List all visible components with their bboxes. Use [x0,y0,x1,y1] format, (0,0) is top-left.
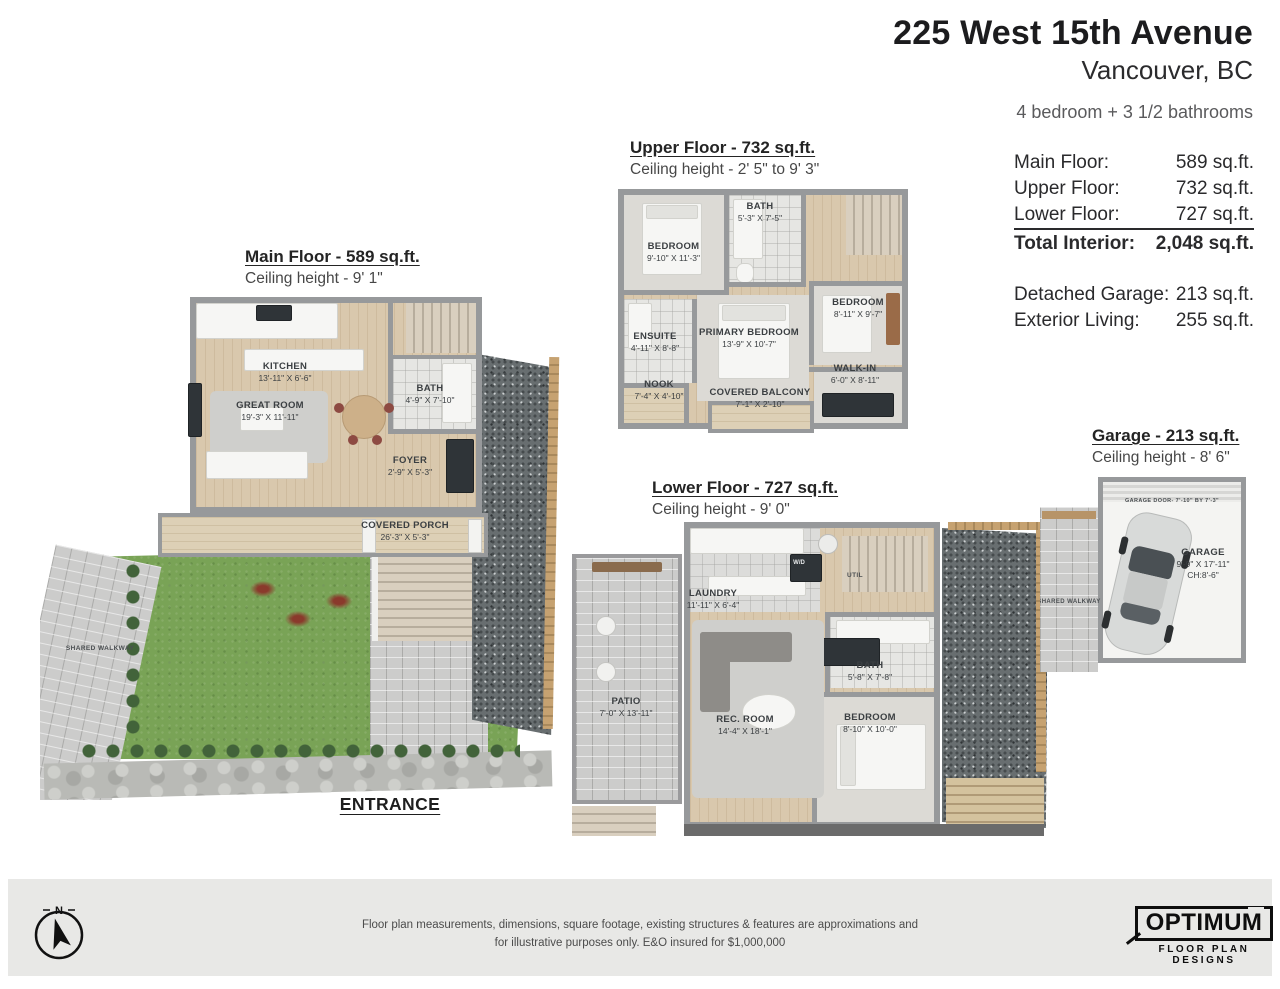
room-label-covered-porch: COVERED PORCH 26'-3" X 5'-3" [330,520,480,543]
table-row-total: Total Interior: 2,048 sq.ft. [1014,230,1254,258]
optimum-logo: OPTIMUM FLOOR PLAN DESIGNS [1128,906,1280,966]
interior-wall [812,692,934,697]
room-label-bath: BATH 5'-8" X 7'-8" [825,660,915,683]
garage-plan: GARAGE DOOR- 7'-10" BY 7'-3" GARAGE 9'-9… [1040,465,1252,680]
stairs [406,303,476,353]
patio-chair [596,662,616,682]
room-label-util: UTIL [825,572,885,580]
stairs [842,536,928,592]
bed-pillows [722,305,786,321]
table-row: Main Floor: 589 sq.ft. [1014,150,1254,176]
floor-plan-sheet: 225 West 15th Avenue Vancouver, BC 4 bed… [0,0,1280,989]
header: 225 West 15th Avenue Vancouver, BC 4 bed… [893,14,1253,123]
area-summary-table: Main Floor: 589 sq.ft. Upper Floor: 732 … [1014,150,1254,334]
garage-title: Garage - 213 sq.ft. Ceiling height - 8' … [1092,425,1239,468]
bed-pillows [646,205,698,219]
main-floor-plan: KITCHEN 13'-11" X 6'-6" GREAT ROOM 19'-3… [40,295,560,800]
dining-chair [372,435,382,445]
water-heater [818,534,838,554]
wood-fence [948,522,1040,530]
room-label-covered-balcony: COVERED BALCONY 7'-1" X 2'-10" [700,387,820,410]
interior-wall [729,282,806,287]
room-label-bedroom: BEDROOM 8'-10" X 10'-0" [818,712,922,735]
patio-chair [596,616,616,636]
garage-door-label: GARAGE DOOR- 7'-10" BY 7'-3" [1102,498,1242,505]
wardrobe [822,393,894,417]
room-label-primary-bedroom: PRIMARY BEDROOM 13'-9" X 10'-7" [693,327,805,350]
table-row: Exterior Living: 255 sq.ft. [1014,308,1254,334]
foundation-edge [684,824,1044,836]
upper-floor-plan: BEDROOM 9'-10" X 11'-3" BATH 5'-3" X 7'-… [618,185,914,439]
room-label-garage: GARAGE 9'-9" X 17'-11" CH:8'-6" [1158,547,1248,581]
shared-walkway-pavers [1040,507,1098,672]
red-plant [326,593,352,609]
car-wheel [1101,610,1112,629]
exterior-stairs [946,778,1044,824]
svg-text:N: N [55,905,63,917]
room-label-laundry: LAUNDRY 11'-11" X 6'-4" [653,588,773,611]
room-label-bath: BATH 5'-3" X 7'-5" [724,201,796,224]
upper-floor-title: Upper Floor - 732 sq.ft. Ceiling height … [630,137,819,180]
car-wheel [1163,624,1174,643]
sofa [700,632,730,712]
room-label-nook: NOOK 7'-4" X 4'-10" [626,379,692,402]
patio-steps [572,806,656,836]
room-label-rec-room: REC. ROOM 14'-4" X 18'-1" [685,714,805,737]
hedge-row [80,743,520,759]
tape-measure-hook-icon [1125,932,1140,945]
table-row: Detached Garage: 213 sq.ft. [1014,282,1254,308]
room-label-bedroom: BEDROOM 8'-11" X 9'-7" [814,297,902,320]
bed-bath-summary: 4 bedroom + 3 1/2 bathrooms [893,102,1253,123]
interior-wall [801,195,806,285]
sofa [206,451,308,479]
tape-measure-frame-icon: OPTIMUM [1135,906,1274,941]
disclaimer-text: Floor plan measurements, dimensions, squ… [0,917,1280,953]
washer-dryer-label: W/D [784,560,814,566]
room-label-great-room: GREAT ROOM 19'-3" X 11'-11" [190,400,350,423]
page-title: 225 West 15th Avenue [893,14,1253,53]
shared-walkway-label: SHARED WALKWAY [50,645,150,653]
room-label-ensuite: ENSUITE 4'-11" X 8'-8" [620,331,690,354]
entrance-label: ENTRANCE [318,794,462,815]
room-label-kitchen: KITCHEN 13'-11" X 6'-6" [225,361,345,384]
car-wheel [1118,536,1129,555]
entry-stairs [372,547,486,641]
interior-wall [393,429,476,434]
lower-floor-title: Lower Floor - 727 sq.ft. Ceiling height … [652,477,838,520]
patio-bench [592,562,662,572]
stairs [846,195,902,255]
main-floor-title: Main Floor - 589 sq.ft. Ceiling height -… [245,246,420,289]
range-stove [256,305,292,321]
car [1100,508,1196,659]
interior-wall [825,612,934,617]
room-label-bath: BATH 4'-9" X 7'-10" [385,383,475,406]
red-plant [250,581,276,597]
dining-chair [348,435,358,445]
room-label-foyer: FOYER 2'-9" X 5'-3" [360,455,460,478]
washer-dryer [790,554,822,582]
shared-walkway-label: SHARED WALKWAY [1040,599,1104,607]
city-subtitle: Vancouver, BC [893,55,1253,86]
laundry-cabinets [690,528,804,554]
red-plant [285,611,311,627]
room-label-patio: PATIO 7'-0" X 13'-11" [572,696,680,719]
table-row: Lower Floor: 727 sq.ft. [1014,202,1254,230]
room-label-bedroom: BEDROOM 9'-10" X 11'-3" [626,241,721,264]
interior-wall [809,281,902,286]
wood-edge [1042,511,1096,519]
lower-floor-plan: LAUNDRY 11'-11" X 6'-4" UTIL W/D BATH 5'… [570,520,1052,838]
table-row: Upper Floor: 732 sq.ft. [1014,176,1254,202]
interior-wall [809,281,814,365]
toilet [736,263,754,283]
room-label-walk-in: WALK-IN 6'-0" X 8'-11" [810,363,900,386]
interior-wall [393,355,476,359]
